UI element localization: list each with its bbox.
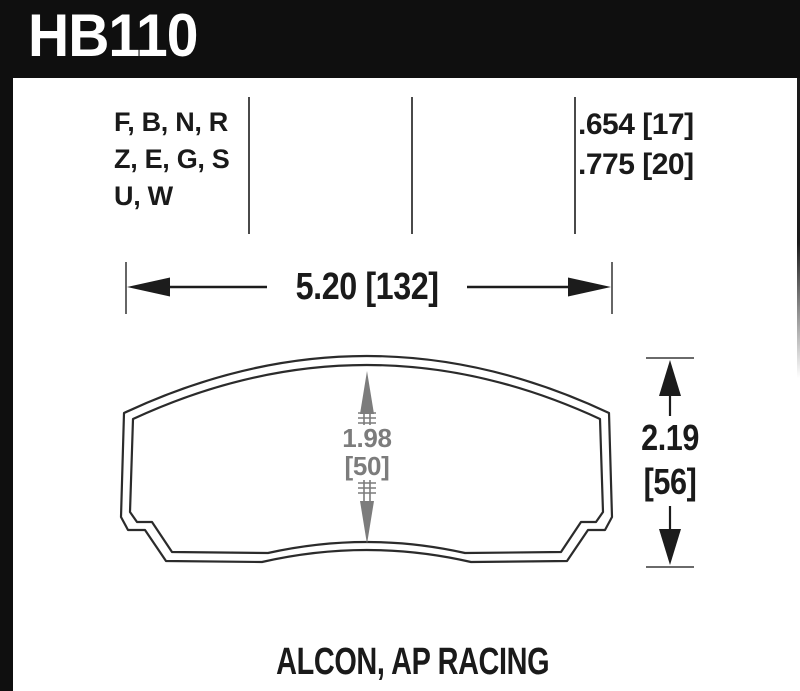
table-column-dividers bbox=[249, 97, 575, 234]
pad-thickness-line: .654 [17] bbox=[578, 105, 694, 145]
height-value-in: 2.19 bbox=[610, 420, 730, 456]
down-arrowhead-icon bbox=[659, 529, 681, 565]
brake-pad-spec-sheet: HB110 bbox=[0, 0, 800, 691]
compound-letters: F, B, N, R Z, E, G, S U, W bbox=[114, 104, 230, 215]
part-number: HB110 bbox=[28, 6, 198, 66]
height-value-mm: [56] bbox=[610, 464, 730, 500]
center-height-value-in: 1.98 bbox=[307, 425, 427, 451]
pad-thickness-values: .654 [17] .775 [20] bbox=[578, 105, 694, 185]
up-arrowhead-icon bbox=[659, 360, 681, 396]
center-height-millimeters: [50] bbox=[344, 451, 389, 481]
compound-letters-line: U, W bbox=[114, 178, 230, 215]
right-arrowhead-icon bbox=[568, 278, 611, 297]
applications-text: ALCON, AP RACING bbox=[13, 642, 800, 682]
left-arrowhead-icon bbox=[127, 278, 170, 297]
height-millimeters: [56] bbox=[644, 464, 697, 500]
height-inches: 2.19 bbox=[641, 420, 699, 456]
width-dimension-label: 5.20 [132] bbox=[267, 267, 467, 307]
pad-thickness-line: .775 [20] bbox=[578, 145, 694, 185]
up-arrowhead-icon bbox=[360, 371, 374, 414]
down-arrowhead-icon bbox=[360, 501, 374, 544]
center-height-inches: 1.98 bbox=[342, 423, 391, 453]
applications-value: ALCON, AP RACING bbox=[276, 642, 549, 682]
width-dimension-value: 5.20 [132] bbox=[295, 267, 438, 307]
compound-letters-line: Z, E, G, S bbox=[114, 141, 230, 178]
compound-letters-line: F, B, N, R bbox=[114, 104, 230, 141]
center-height-value-mm: [50] bbox=[307, 453, 427, 479]
